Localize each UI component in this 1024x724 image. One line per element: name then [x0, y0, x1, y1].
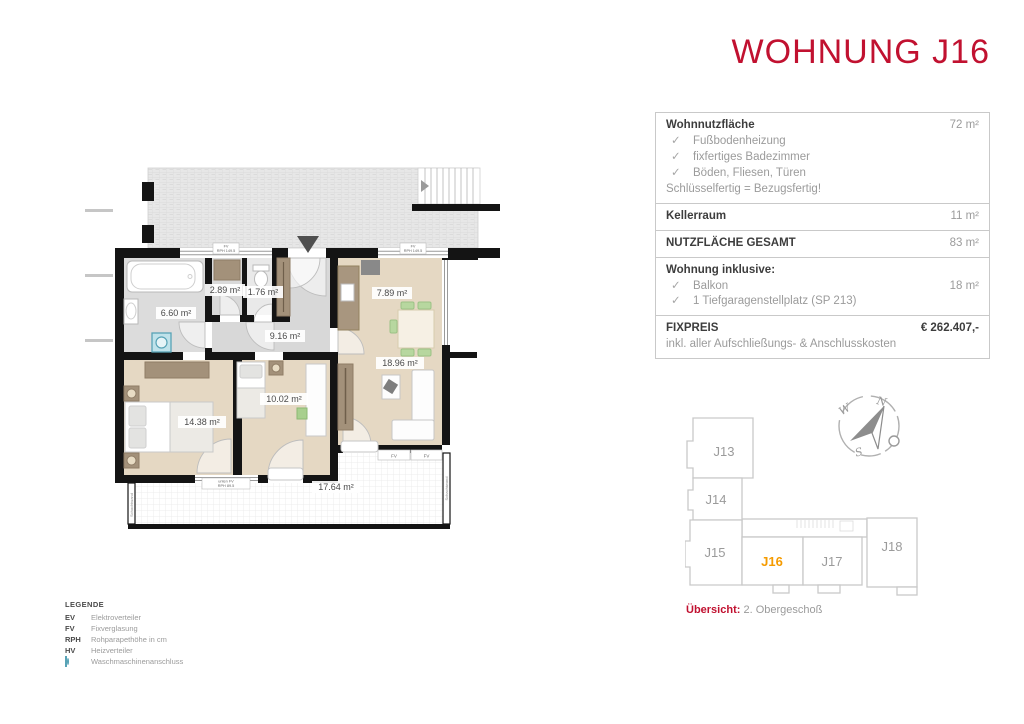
area-bad: 6.60 m² — [161, 308, 192, 318]
unit-label-j18: J18 — [882, 539, 903, 554]
keller-label: Kellerraum — [666, 209, 726, 224]
bathtub — [127, 261, 203, 292]
balkon-value: 18 m² — [950, 279, 979, 294]
unit-label-j16: J16 — [761, 554, 783, 569]
gesamt-label: NUTZFLÄCHE GESAMT — [666, 236, 796, 251]
building-overview: J13 J14 J15 J16 J17 J18 — [685, 415, 935, 597]
wohnnutz-label: Wohnnutzfläche — [666, 118, 755, 133]
info-table: Wohnnutzfläche 72 m² ✓ Fußbodenheizung ✓… — [655, 112, 990, 359]
garage-label: 1 Tiefgaragenstellplatz (SP 213) — [693, 294, 979, 309]
balkon-label: Balkon — [693, 279, 942, 294]
legend-item: HV Heizverteiler — [65, 645, 183, 656]
legend: LEGENDE EV Elektroverteiler FV Fixvergla… — [65, 600, 183, 667]
area-wohnzimmer: 18.96 m² — [382, 358, 418, 368]
area-schlafzimmer: 14.38 m² — [184, 417, 220, 427]
svg-text:RPH 149.5: RPH 149.5 — [217, 249, 236, 253]
washer-label: Waschmaschinenanschluss — [91, 657, 183, 666]
area-flur: 9.16 m² — [270, 331, 301, 341]
info-row-gesamt: NUTZFLÄCHE GESAMT 83 m² — [656, 231, 989, 258]
info-row-inklusive: Wohnung inklusive: ✓ Balkon 18 m² ✓ 1 Ti… — [656, 258, 989, 317]
staircase — [412, 168, 500, 211]
info-row-fixpreis: FIXPREIS € 262.407,- inkl. aller Aufschl… — [656, 316, 989, 358]
coffee-table — [382, 375, 400, 399]
schachtwand-label-right: Schachtwand — [444, 476, 449, 500]
svg-text:FV: FV — [424, 453, 430, 458]
area-kueche: 7.89 m² — [377, 288, 408, 298]
unit-label-j13: J13 — [714, 444, 735, 459]
washing-machine-legend-icon — [65, 656, 67, 667]
check-icon: ✓ — [671, 294, 681, 309]
nightstand — [269, 361, 283, 375]
info-row-wohnnutzflaeche: Wohnnutzfläche 72 m² ✓ Fußbodenheizung ✓… — [656, 113, 989, 204]
living-wardrobe — [338, 364, 353, 430]
wohnnutz-note: Schlüsselfertig = Bezugsfertig! — [666, 182, 979, 197]
unit-label-j14: J14 — [706, 492, 727, 507]
svg-text:FV: FV — [391, 453, 397, 458]
brochure-page: WOHNUNG J16 — [0, 0, 1024, 724]
schachtwand-label-left: Schachtwand — [129, 493, 134, 517]
check-item: ✓ Fußbodenheizung — [666, 134, 979, 149]
svg-text:FV: FV — [224, 245, 229, 249]
svg-text:RPH 89.5: RPH 89.5 — [218, 484, 234, 488]
unit-label-j17: J17 — [822, 554, 843, 569]
check-icon: ✓ — [671, 150, 681, 165]
storage-wardrobe — [214, 260, 240, 280]
page-title: WOHNUNG J16 — [732, 33, 990, 72]
overview-caption: Übersicht: 2. Obergeschoß — [686, 604, 822, 616]
overview-caption-text: 2. Obergeschoß — [743, 604, 822, 616]
nightstand — [124, 386, 139, 401]
svg-text:unten FV: unten FV — [218, 480, 234, 484]
nightstand — [124, 453, 139, 468]
area-wc: 1.76 m² — [248, 287, 279, 297]
area-balkon: 17.64 m² — [318, 482, 354, 492]
wohnnutz-value: 72 m² — [950, 118, 979, 133]
legend-item-washer: Waschmaschinenanschluss — [65, 656, 183, 667]
balcony-door-threshold — [268, 468, 303, 480]
kitchen-counter — [338, 266, 359, 330]
washing-machine-icon — [152, 333, 171, 352]
single-bed — [237, 362, 265, 418]
floor-plan: Schachtwand Schachtwand FV RPH 149.5 FV … — [75, 162, 515, 557]
info-row-kellerraum: Kellerraum 11 m² — [656, 204, 989, 231]
washbasin — [124, 299, 138, 324]
svg-text:FV: FV — [411, 245, 416, 249]
check-item: ✓ Balkon 18 m² — [666, 279, 979, 294]
overview-corridor — [742, 519, 867, 537]
check-item: ✓ Böden, Fliesen, Türen — [666, 166, 979, 181]
check-item: ✓ fixfertiges Badezimmer — [666, 150, 979, 165]
legend-item: EV Elektroverteiler — [65, 612, 183, 623]
area-abstellraum: 2.89 m² — [210, 285, 241, 295]
legend-item: FV Fixverglasung — [65, 623, 183, 634]
fixpreis-label: FIXPREIS — [666, 321, 718, 336]
legend-title: LEGENDE — [65, 600, 183, 609]
inklusive-label: Wohnung inklusive: — [666, 263, 775, 278]
living-balcony-threshold — [341, 441, 378, 452]
check-icon: ✓ — [671, 134, 681, 149]
legend-item: RPH Rohparapethöhe in cm — [65, 634, 183, 645]
svg-text:RPH 149.5: RPH 149.5 — [404, 249, 423, 253]
check-item: ✓ 1 Tiefgaragenstellplatz (SP 213) — [666, 294, 979, 309]
toilet — [253, 265, 269, 287]
area-zimmer: 10.02 m² — [266, 394, 302, 404]
fixpreis-value: € 262.407,- — [921, 321, 979, 336]
keller-value: 11 m² — [950, 209, 979, 224]
gesamt-value: 83 m² — [950, 236, 979, 251]
overview-caption-label: Übersicht: — [686, 604, 740, 616]
check-icon: ✓ — [671, 166, 681, 181]
fixpreis-note: inkl. aller Aufschließungs- & Anschlussk… — [666, 337, 979, 352]
check-icon: ✓ — [671, 279, 681, 294]
chimney-block — [361, 260, 380, 275]
neighbor-wall-ticks — [85, 209, 113, 342]
unit-label-j15: J15 — [705, 545, 726, 560]
